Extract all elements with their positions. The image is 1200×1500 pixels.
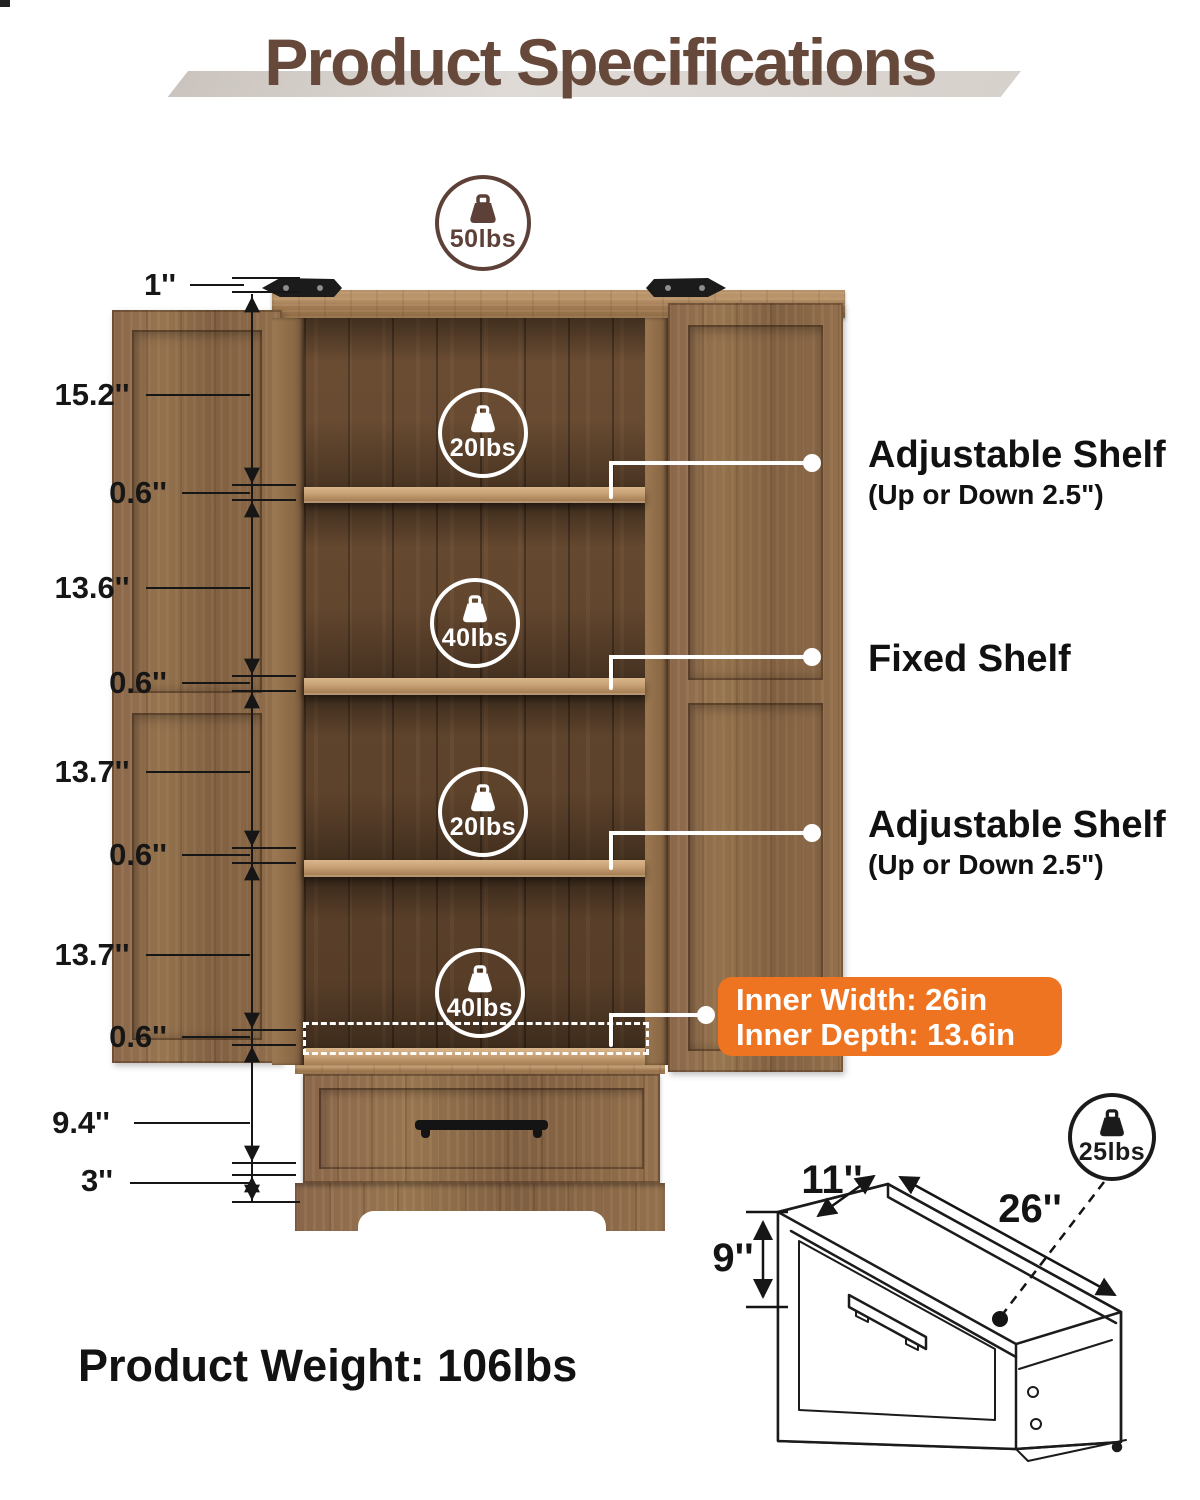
dimension-label: 13.7'' [40, 937, 144, 973]
product-spec-sheet: Product Specifications [0, 0, 1200, 1500]
weight-icon [465, 194, 501, 226]
adjustable-shelf-1 [304, 487, 645, 503]
weight-capacity-badge-top: 50lbs [435, 175, 531, 271]
dimension-label: 0.6'' [96, 837, 180, 873]
dimension-label: 13.6'' [40, 570, 144, 606]
weight-capacity-badge-drawer: 25lbs [1068, 1093, 1156, 1181]
fixed-shelf [304, 678, 645, 695]
corner-artifact [0, 0, 10, 7]
page-title: Product Specifications [0, 26, 1200, 99]
dimension-label: 13.7'' [40, 754, 144, 790]
adjustable-shelf-bottom-label: Adjustable Shelf [868, 806, 1166, 846]
interior-left-frame [272, 318, 304, 1065]
weight-capacity-badge-compartment1: 20lbs [438, 388, 528, 478]
adjustable-shelf-top-label: Adjustable Shelf [868, 436, 1166, 476]
weight-icon [1095, 1109, 1129, 1139]
drawer-handle [415, 1120, 548, 1130]
dimension-label: 0.6'' [96, 665, 180, 701]
weight-icon [466, 784, 500, 814]
adjustable-shelf-2 [304, 860, 645, 877]
drawer-top-rail [295, 1065, 665, 1074]
drawer-depth-label: 11'' [792, 1160, 872, 1200]
dimension-label: 1'' [130, 267, 190, 303]
product-weight-text: Product Weight: 106lbs [78, 1340, 577, 1392]
dimension-label: 9.4'' [30, 1105, 132, 1141]
weight-badge-label: 40lbs [442, 626, 508, 651]
left-door-upper-panel [132, 330, 262, 693]
weight-capacity-badge-compartment4: 40lbs [435, 948, 525, 1038]
weight-badge-label: 25lbs [1079, 1140, 1145, 1165]
weight-icon [466, 405, 500, 435]
inner-dimensions-callout: Inner Width: 26in Inner Depth: 13.6in [718, 977, 1062, 1056]
weight-icon [463, 965, 497, 995]
interior-right-frame [645, 318, 668, 1065]
dimension-label: 0.6'' [96, 475, 180, 511]
cabinet-right-door [668, 303, 843, 1072]
drawer-length-label: 26'' [985, 1189, 1075, 1229]
weight-capacity-badge-compartment2: 40lbs [430, 578, 520, 668]
dimension-label: 3'' [67, 1163, 127, 1199]
left-door-lower-panel [132, 713, 262, 1040]
weight-badge-label: 40lbs [447, 996, 513, 1021]
cabinet-drawer-front [303, 1074, 660, 1183]
weight-icon [458, 595, 492, 625]
cabinet-base-plinth [295, 1183, 665, 1231]
right-door-upper-panel [688, 325, 823, 680]
inner-depth-text: Inner Depth: 13.6in [736, 1017, 1062, 1052]
inner-width-text: Inner Width: 26in [736, 982, 1062, 1017]
plinth-arch-cutout [358, 1211, 606, 1231]
weight-badge-label: 20lbs [450, 436, 516, 461]
fixed-shelf-label: Fixed Shelf [868, 640, 1071, 680]
weight-capacity-badge-compartment3: 20lbs [438, 767, 528, 857]
adjustable-shelf-top-sublabel: (Up or Down 2.5") [868, 480, 1104, 509]
dimension-label: 0.6'' [96, 1019, 180, 1055]
weight-badge-label: 50lbs [450, 227, 516, 252]
adjustable-shelf-bottom-sublabel: (Up or Down 2.5") [868, 850, 1104, 879]
drawer-height-label: 9'' [698, 1238, 768, 1278]
dimension-label: 15.2'' [40, 377, 144, 413]
weight-badge-label: 20lbs [450, 815, 516, 840]
